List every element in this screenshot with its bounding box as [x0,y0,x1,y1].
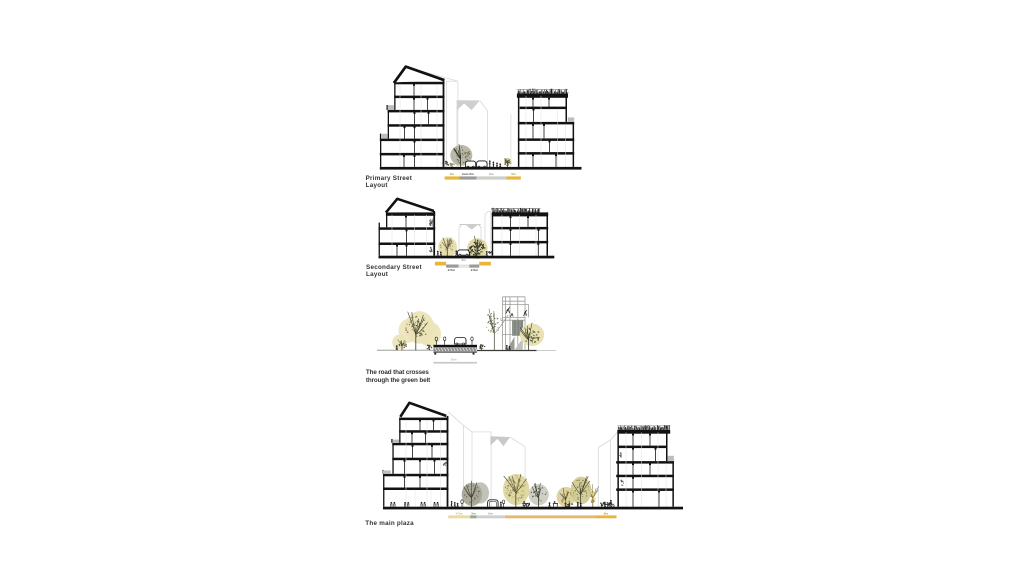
svg-text:2.5m: 2.5m [448,268,455,272]
svg-text:3m: 3m [511,172,516,176]
svg-text:4.5m: 4.5m [455,511,462,515]
svg-text:2.5m: 2.5m [471,268,478,272]
svg-text:Layout: Layout [366,271,389,278]
svg-text:6m: 6m [489,172,494,176]
svg-text:The main plaza: The main plaza [365,520,414,527]
svg-text:3m: 3m [450,172,455,176]
svg-text:tram 6m: tram 6m [462,172,474,176]
svg-text:6m: 6m [461,258,466,262]
svg-text:through the green belt: through the green belt [366,377,431,384]
svg-text:3m: 3m [471,511,476,515]
svg-text:16m: 16m [450,358,456,362]
svg-text:6m: 6m [488,511,493,515]
svg-text:The road that crosses: The road that crosses [366,369,430,376]
svg-text:Layout: Layout [366,182,389,189]
svg-text:3m: 3m [604,511,609,515]
